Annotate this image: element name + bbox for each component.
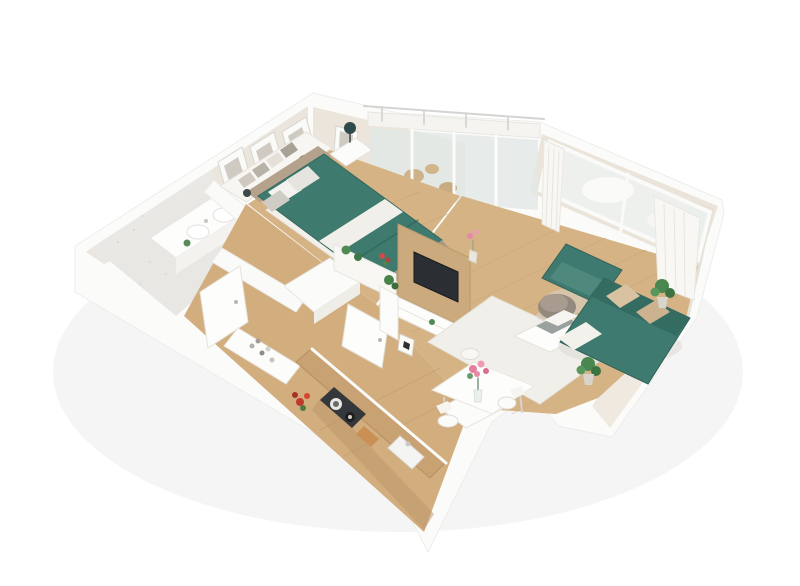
shelf-column (380, 286, 398, 340)
console-flower (467, 233, 473, 239)
tile-dot (133, 229, 135, 231)
kitchen-flower (296, 398, 304, 406)
pot-inner (333, 401, 339, 407)
console-plant (429, 319, 435, 325)
shoe (256, 339, 261, 344)
floorplan-3d-render (0, 0, 800, 586)
faucet (204, 219, 208, 223)
balcony-table (425, 164, 439, 174)
tile-dot (117, 241, 119, 243)
dining-chair (498, 397, 516, 409)
rose-leaves (467, 373, 473, 379)
potted-plant (577, 366, 586, 375)
tile-dot (149, 261, 151, 263)
faucet (406, 442, 411, 447)
vanity-sink (187, 225, 209, 239)
half-wall-plant (354, 253, 362, 261)
lamp-shade (344, 122, 356, 134)
lamp-shade (243, 189, 251, 197)
kitchen-flower (292, 392, 298, 398)
kitchen-flower (304, 393, 310, 399)
shelf-plant (384, 275, 394, 285)
shoe (250, 344, 255, 349)
rose (478, 361, 485, 368)
dining-chair (461, 349, 479, 360)
flower-vase (469, 250, 477, 263)
half-wall-leaf (383, 261, 388, 266)
door-handle (378, 338, 382, 342)
pouf-top (540, 294, 568, 312)
kitchen-leaf (300, 405, 306, 411)
shoe (260, 351, 265, 356)
shoe (266, 347, 271, 352)
potted-plant (651, 288, 660, 297)
door-handle (234, 300, 238, 304)
screenshot-root (0, 0, 800, 586)
tile-dot (141, 215, 143, 217)
tile-dot (165, 273, 167, 275)
floorplan-svg (0, 0, 800, 586)
shelf-plant (392, 283, 399, 290)
dining-chair (438, 415, 458, 427)
half-wall-plant (342, 246, 351, 255)
potted-plant (665, 288, 675, 298)
shoe (270, 358, 275, 363)
rose (474, 371, 480, 377)
tile-dot (139, 283, 141, 285)
rose (483, 368, 489, 374)
pot-lid (348, 415, 352, 419)
flower-vase (474, 390, 482, 402)
console-flower (474, 230, 479, 235)
half-wall-flower (379, 253, 385, 259)
vanity-plant (184, 240, 191, 247)
